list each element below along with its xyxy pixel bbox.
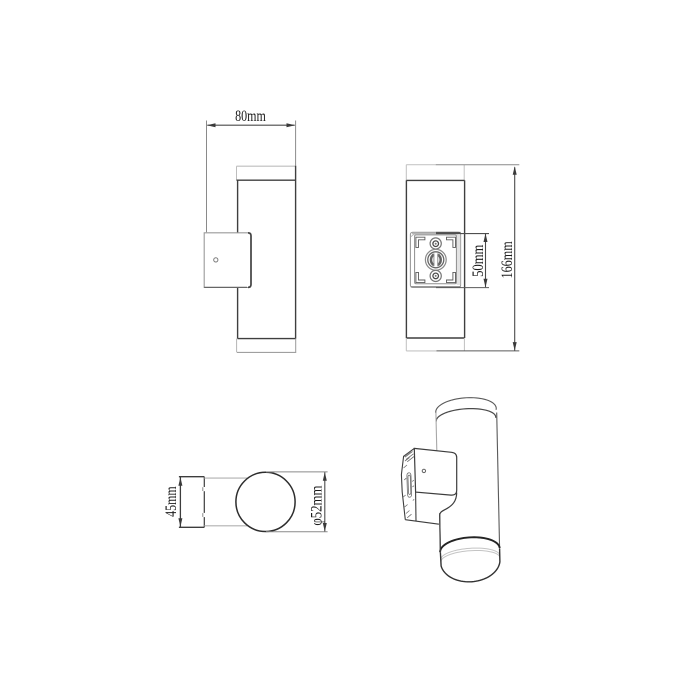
svg-text:φ52mm: φ52mm — [308, 485, 326, 526]
svg-text:45mm: 45mm — [163, 486, 181, 516]
svg-text:50mm: 50mm — [470, 245, 488, 277]
svg-text:166mm: 166mm — [498, 241, 516, 278]
svg-text:80mm: 80mm — [235, 108, 266, 126]
